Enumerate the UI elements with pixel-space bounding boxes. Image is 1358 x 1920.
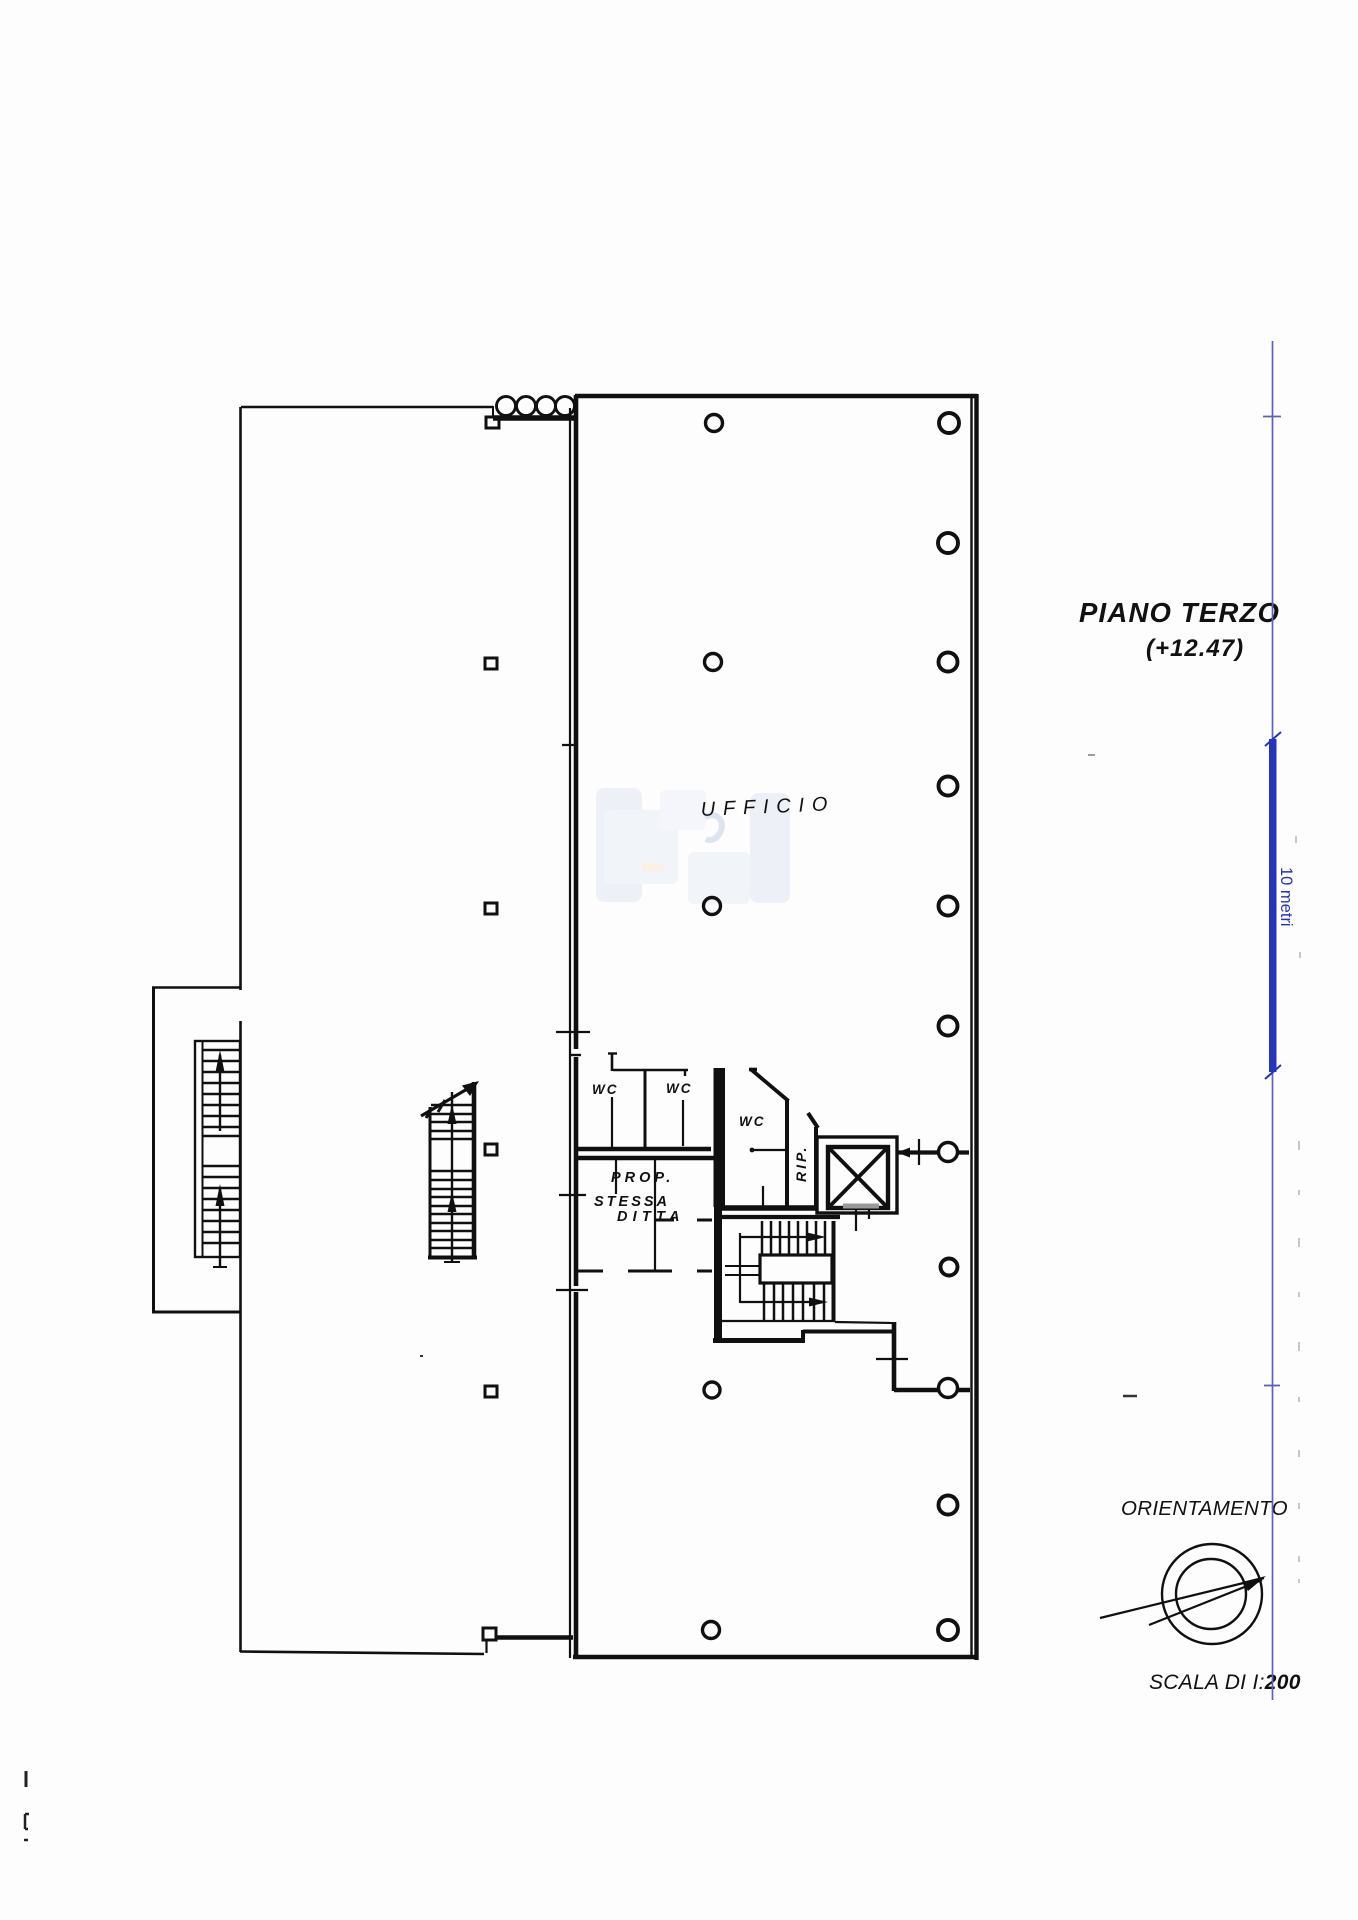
svg-text:WC: WC	[592, 1082, 619, 1097]
svg-text:DITTA: DITTA	[617, 1209, 685, 1225]
svg-text:PROP.: PROP.	[611, 1170, 674, 1186]
svg-text:ORIENTAMENTO: ORIENTAMENTO	[1121, 1497, 1288, 1520]
svg-text:RIP.: RIP.	[793, 1145, 809, 1182]
svg-text:10 metri: 10 metri	[1277, 867, 1295, 927]
svg-text:WC: WC	[666, 1081, 693, 1096]
svg-text:STESSA: STESSA	[594, 1194, 670, 1210]
svg-text:SCALA DI I:200: SCALA DI I:200	[1149, 1671, 1301, 1694]
svg-text:UFFICIO: UFFICIO	[700, 793, 835, 821]
svg-text:(+12.47): (+12.47)	[1146, 635, 1244, 662]
svg-text:WC: WC	[739, 1114, 766, 1129]
svg-text:PIANO TERZO: PIANO TERZO	[1079, 597, 1280, 628]
